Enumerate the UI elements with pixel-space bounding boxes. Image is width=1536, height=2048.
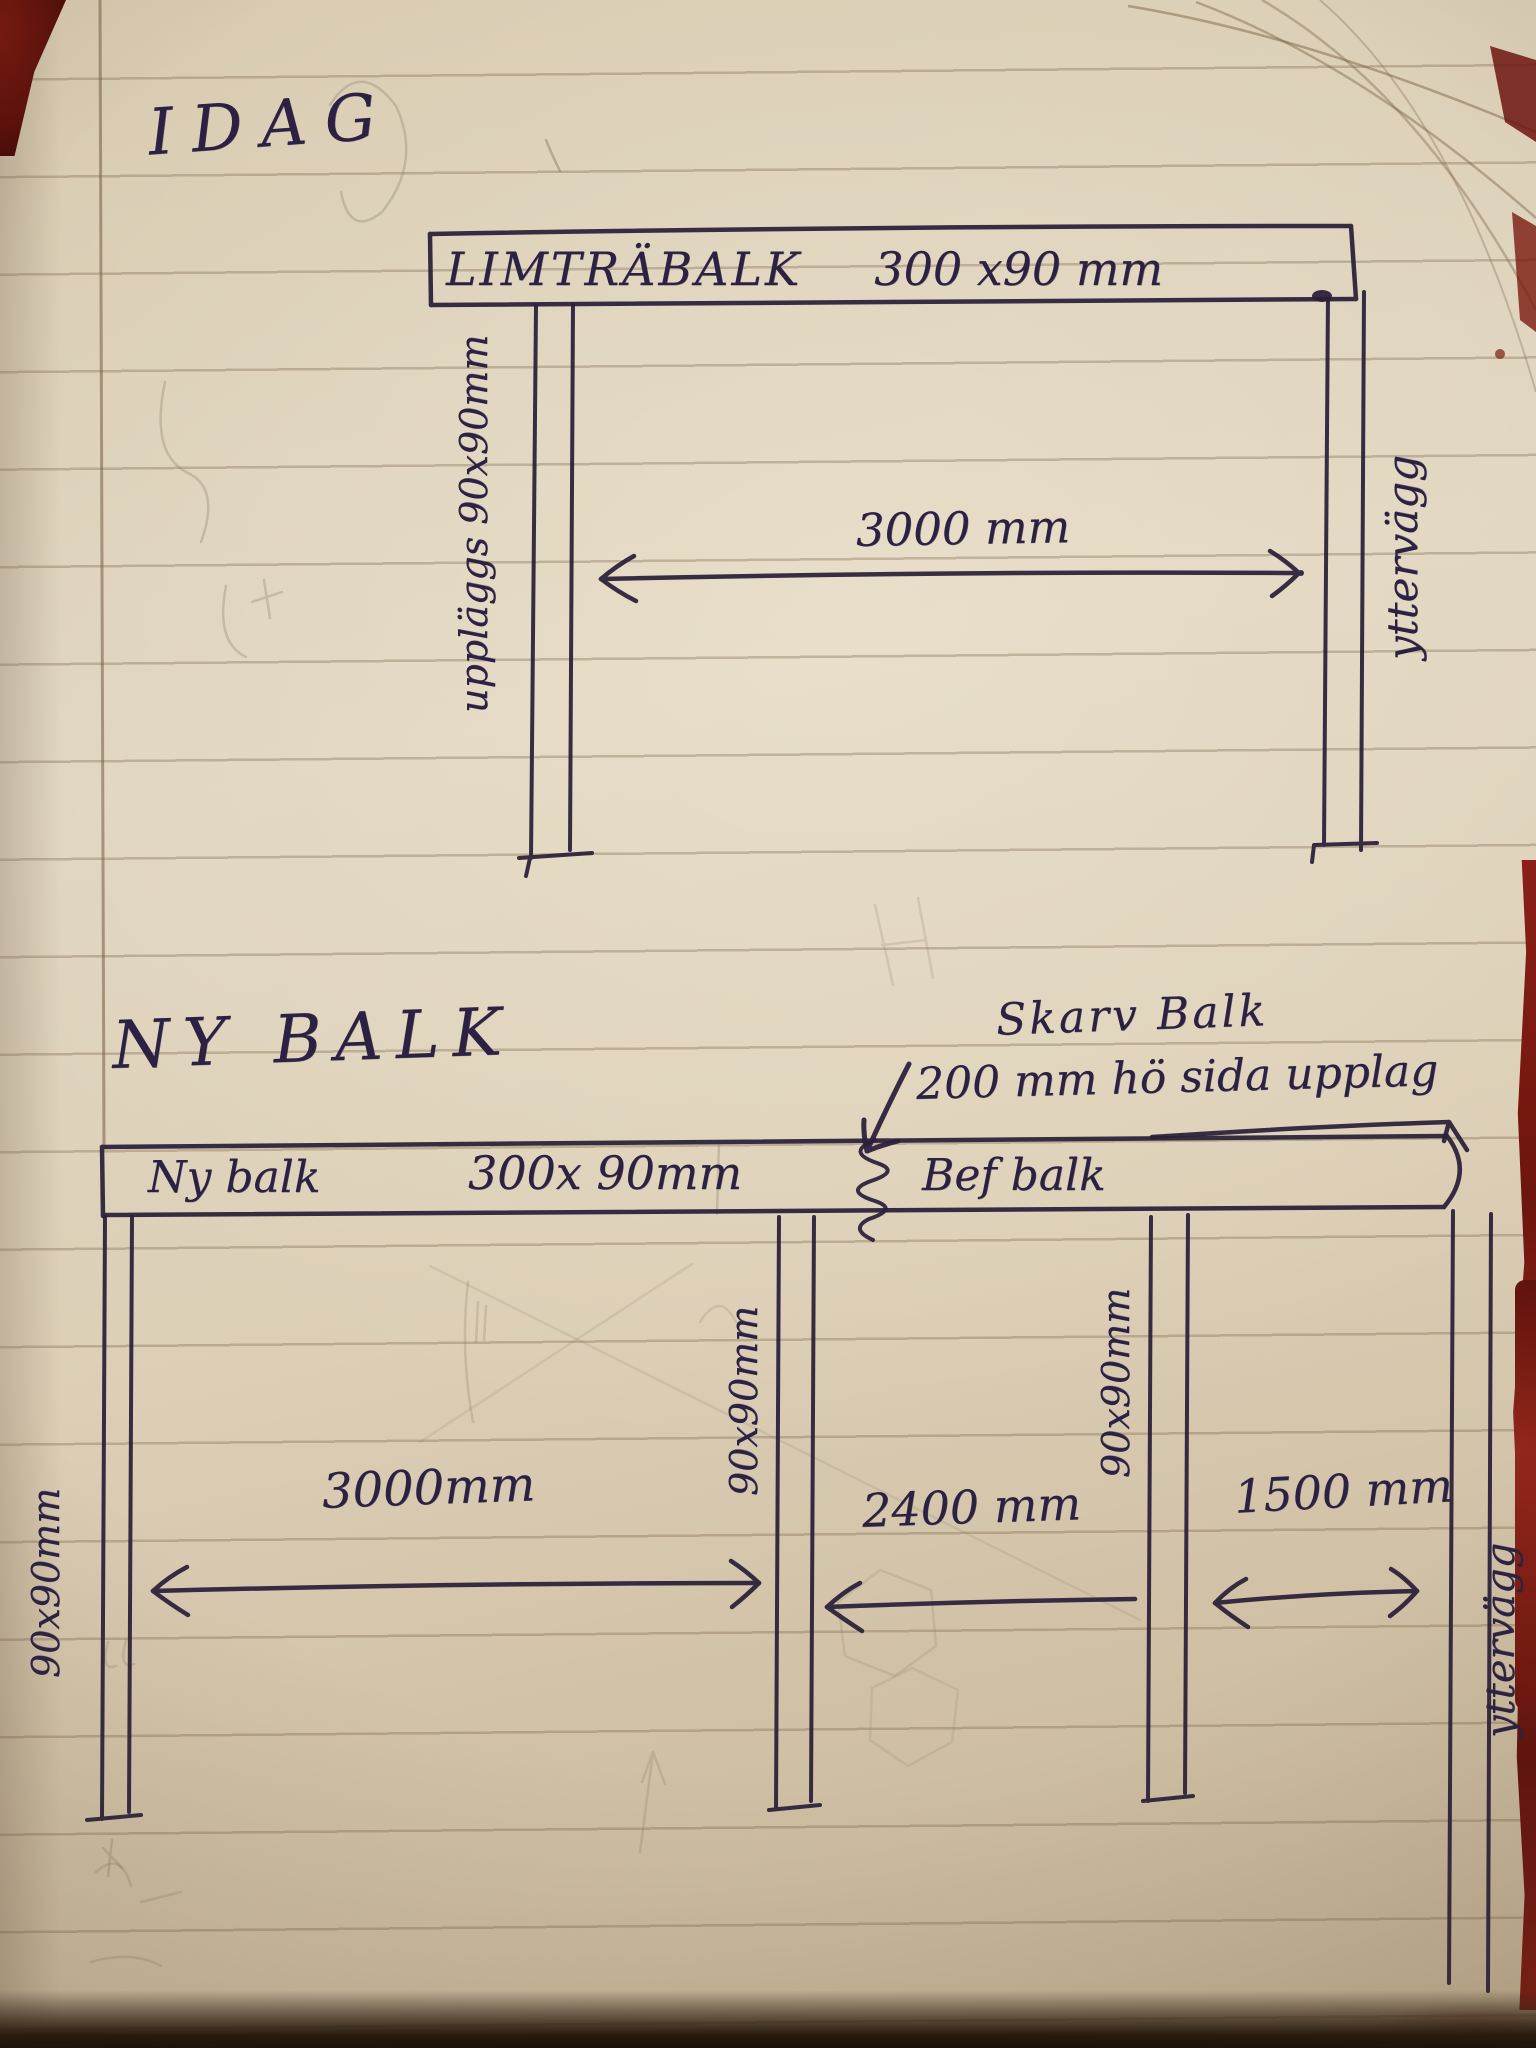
existing-beam-label: Bef balk (922, 1150, 1106, 1201)
post-right (1143, 1215, 1193, 1801)
new-beam-label: Ny balk (148, 1152, 320, 1203)
post-left (87, 1217, 141, 1820)
dim-left-arrow (153, 1561, 759, 1615)
left-support-post (519, 305, 592, 876)
page-bottom-shadow (0, 1990, 1536, 2048)
ny-balk-heading: NY BALK (111, 993, 516, 1084)
span-dimension-arrow (601, 551, 1304, 601)
notebook-page-photo: IDAG LIMTRÄBALK 300 x90 mm uppläggs 90x9… (0, 0, 1536, 2048)
post-left-label: 90x90mm (24, 1378, 68, 1678)
beam-size-label: 300 x90 mm (874, 242, 1163, 296)
span-dimension-label: 3000 mm (856, 500, 1071, 557)
right-wall-post (1312, 290, 1377, 862)
splice-zigzag-mark (858, 1140, 888, 1240)
post-mid (769, 1217, 820, 1810)
dim-mid-arrow (827, 1583, 1135, 1631)
wall-label-bottom: yttervägg (1478, 1418, 1524, 1738)
wall-label-top: yttervägg (1378, 392, 1427, 660)
glulam-beam-label: LIMTRÄBALK 300 x90 mm (446, 238, 1336, 300)
beam-name-label: LIMTRÄBALK (446, 242, 802, 296)
dim-right-arrow (1215, 1569, 1417, 1627)
post-right-label: 90x90mm (1094, 1248, 1138, 1478)
splice-pointer-arrow (864, 1064, 909, 1151)
left-support-label: uppläggs 90x90mm (452, 315, 496, 713)
dim-left-label: 3000mm (321, 1456, 536, 1519)
dim-mid-label: 2400 mm (861, 1476, 1082, 1538)
splice-note-line1: Skarv Balk (995, 985, 1269, 1045)
post-mid-label: 90x90mm (722, 1256, 766, 1496)
dim-right-label: 1500 mm (1233, 1458, 1454, 1523)
new-beam-size-label: 300x 90mm (468, 1146, 742, 1200)
